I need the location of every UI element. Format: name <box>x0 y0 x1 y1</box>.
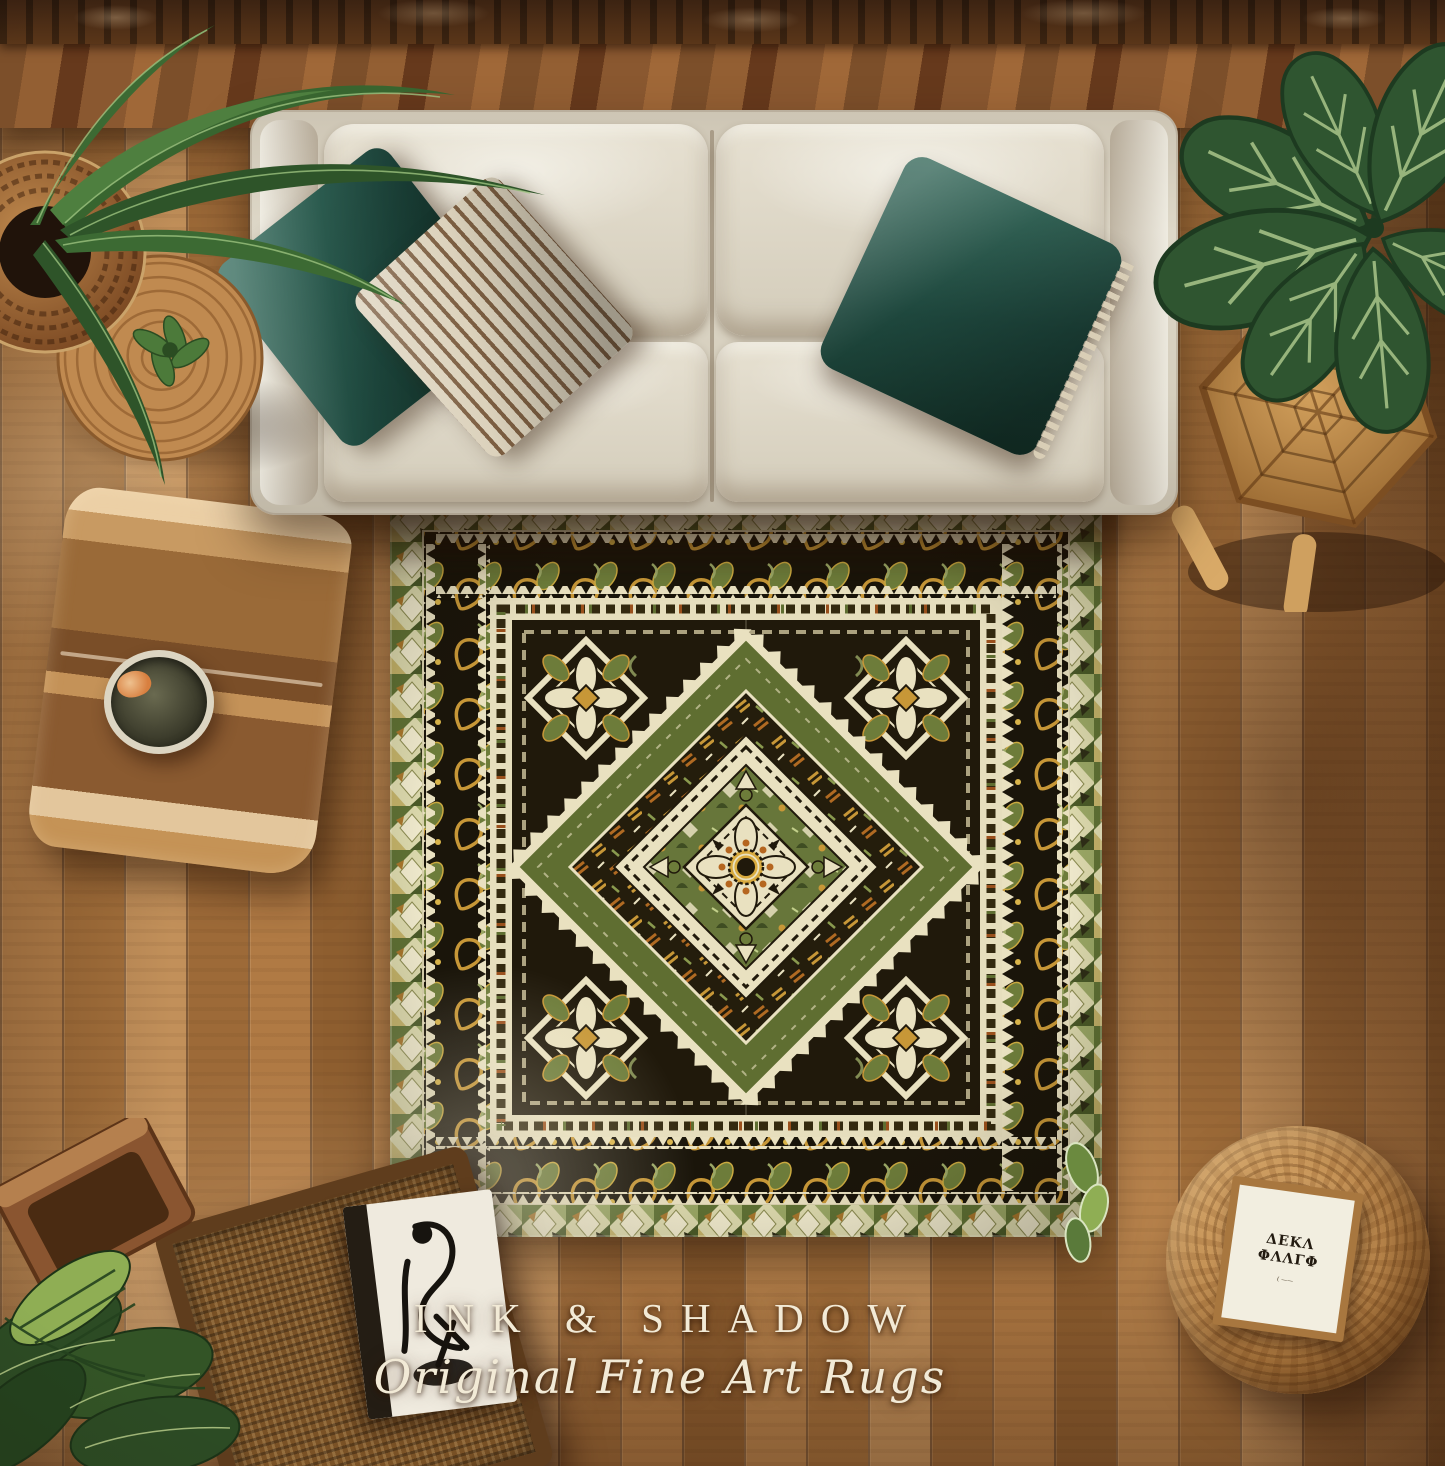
jute-pouf: ΔΕΚΛ ΦΛΛΓΦ ( —— <box>1166 1126 1430 1394</box>
small-leaf-sprig <box>1052 1138 1132 1268</box>
brand-name-text: INK & SHADOW <box>374 1294 947 1342</box>
framed-card: ΔΕΚΛ ΦΛΛΓΦ ( —— <box>1212 1176 1364 1343</box>
living-room-product-photo: ΔΕΚΛ ΦΛΛΓΦ ( —— INK & SHADOW Original Fi… <box>0 0 1445 1466</box>
brand-watermark: INK & SHADOW Original Fine Art Rugs <box>374 1294 947 1404</box>
ornate-green-rug <box>390 498 1102 1237</box>
rubber-plant-and-planter <box>0 1118 325 1466</box>
cushion-seam <box>710 130 714 502</box>
stool-shadow <box>1188 532 1445 612</box>
brand-tagline-text: Original Fine Art Rugs <box>374 1350 947 1404</box>
fig-crown <box>1364 218 1384 238</box>
decorative-bowl <box>104 650 214 754</box>
rug-light-wash <box>390 498 1102 1237</box>
card-line-3: ( —— <box>1277 1275 1294 1284</box>
palm-plant-and-side-table <box>0 0 625 525</box>
fiddle-leaf-fig-plant <box>1118 14 1445 464</box>
